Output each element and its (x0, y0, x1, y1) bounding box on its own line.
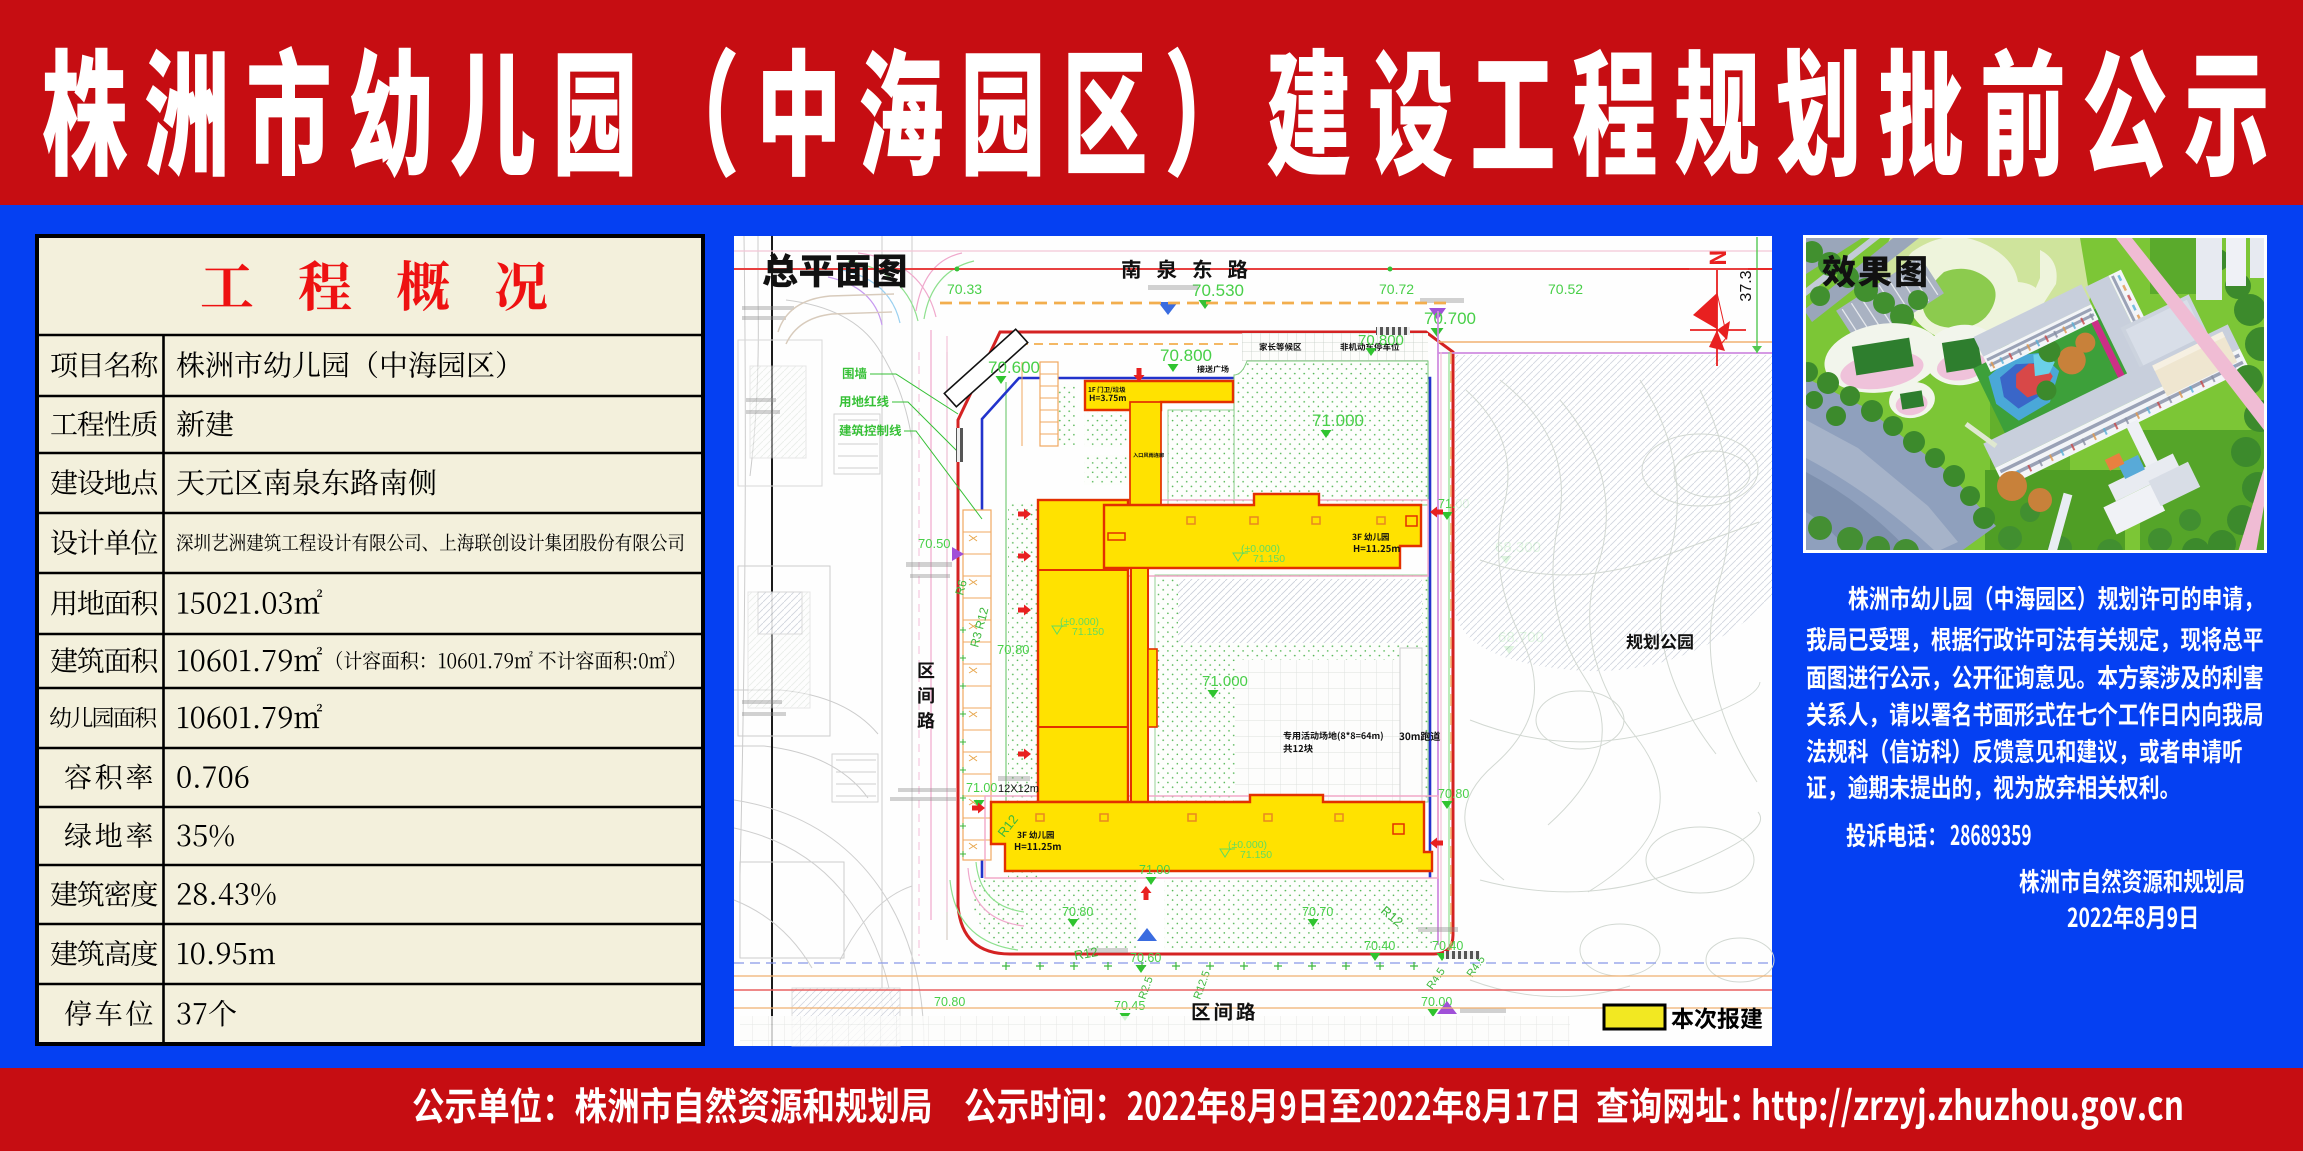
svg-text:71.000: 71.000 (1202, 673, 1248, 690)
svg-text:70.50: 70.50 (918, 536, 951, 551)
svg-text:71.150: 71.150 (1240, 849, 1272, 861)
svg-text:70.80: 70.80 (1438, 787, 1469, 801)
svg-text:37.3: 37.3 (1738, 270, 1755, 301)
svg-text:70.80: 70.80 (997, 642, 1030, 657)
svg-text:70.40: 70.40 (1364, 939, 1395, 953)
svg-text:70.40: 70.40 (1432, 939, 1463, 953)
svg-text:70.45: 70.45 (1114, 999, 1145, 1013)
svg-text:70.530: 70.530 (1192, 281, 1244, 300)
svg-text:70.80: 70.80 (934, 995, 965, 1009)
svg-text:70.600: 70.600 (988, 358, 1040, 377)
svg-text:70.80: 70.80 (1062, 905, 1093, 919)
svg-text:70.70: 70.70 (1302, 905, 1333, 919)
svg-text:70.72: 70.72 (1379, 281, 1414, 297)
svg-text:71.00: 71.00 (1139, 863, 1170, 877)
svg-text:71.150: 71.150 (1072, 626, 1104, 638)
svg-text:71.00: 71.00 (966, 781, 997, 795)
svg-text:70.700: 70.700 (1424, 309, 1476, 328)
svg-text:71.150: 71.150 (1253, 553, 1285, 565)
svg-text:70.800: 70.800 (1160, 346, 1212, 365)
svg-text:71.000: 71.000 (1312, 411, 1364, 430)
svg-text:70.33: 70.33 (947, 281, 982, 297)
svg-text:12X12m: 12X12m (998, 783, 1039, 795)
svg-text:70.52: 70.52 (1548, 281, 1583, 297)
